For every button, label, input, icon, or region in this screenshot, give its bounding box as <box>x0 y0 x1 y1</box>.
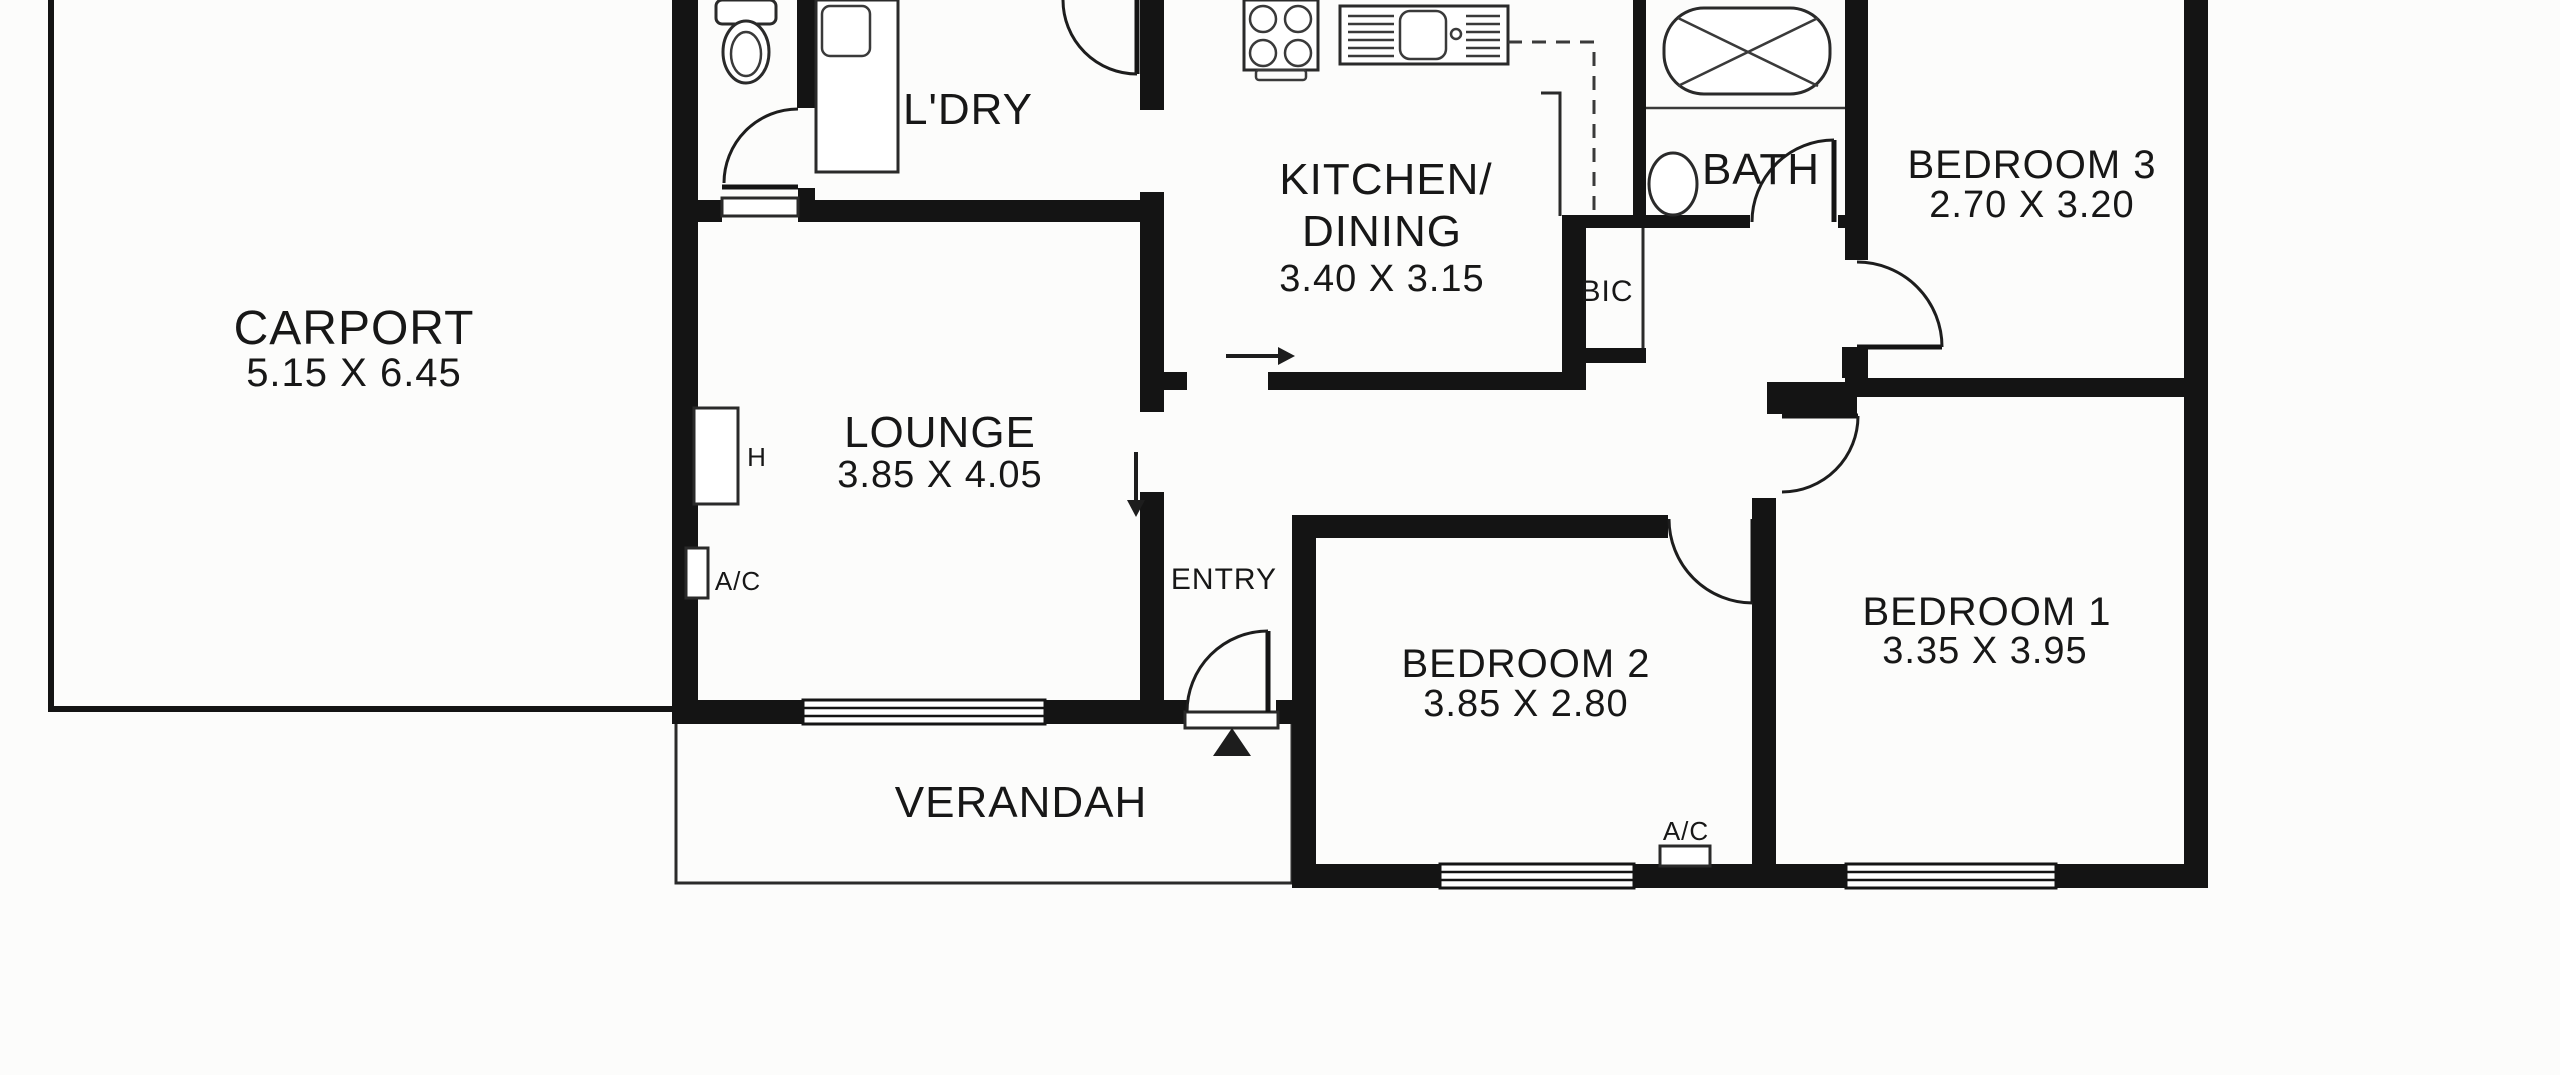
bath-right-wall <box>1845 0 1868 260</box>
lounge-window-icon <box>803 700 1045 724</box>
cooktop-icon <box>1244 0 1318 80</box>
bottom-wall-c <box>2056 864 2208 888</box>
bedroom3-door-stub <box>1842 347 1868 378</box>
lounge-bottom-wall-right <box>1045 700 1188 724</box>
ac-unit-bedroom2-icon <box>1660 846 1710 866</box>
laundry-trough-icon <box>816 0 898 172</box>
lounge-right-wall-upper <box>1140 192 1164 412</box>
bic-label: BIC <box>1580 275 1633 308</box>
lounge-right-wall-lower <box>1140 492 1164 724</box>
laundry-right-wall <box>1140 0 1164 110</box>
entry-wall-stub <box>1164 372 1187 390</box>
bedroom2-dims: 3.85 X 2.80 <box>1423 683 1628 725</box>
floor-plan: CARPORT 5.15 X 6.45 L'DRY KITCHEN/ DININ… <box>0 0 2560 1075</box>
bedroom3-dims: 2.70 X 3.20 <box>1929 184 2134 226</box>
laundry-bottom-wall-right <box>815 200 1164 222</box>
heater-unit-icon <box>694 408 738 504</box>
bedroom2-left-wall <box>1292 515 1316 888</box>
kitchen-label-line2: DINING <box>1302 207 1462 256</box>
kitchen-label-line1: KITCHEN/ <box>1279 155 1492 204</box>
kitchen-sink-icon <box>1340 6 1508 64</box>
bedroom1-window-icon <box>1846 864 2056 888</box>
kitchen-bottom-wall <box>1268 372 1586 390</box>
laundry-bottom-wall-left <box>672 200 722 222</box>
bedroom1-dims: 3.35 X 3.95 <box>1882 630 2087 672</box>
bedroom3-bedroom1-divider <box>1845 378 2184 397</box>
bath-bottom-wall <box>1562 215 1750 228</box>
ac-label-bedroom2: A/C <box>1663 816 1709 846</box>
bedroom1-left-wall <box>1752 498 1776 864</box>
kitchen-dims: 3.40 X 3.15 <box>1279 258 1484 300</box>
house-right-wall <box>2184 0 2208 888</box>
bath-left-wall <box>1633 0 1646 228</box>
bottom-wall-a <box>1292 864 1440 888</box>
lounge-bottom-wall-left <box>672 700 803 724</box>
bedroom2-window-icon <box>1440 864 1634 888</box>
carport-left-wall <box>48 0 54 712</box>
wc-door-jamb <box>798 188 815 222</box>
wash-basin-icon <box>1649 153 1697 215</box>
carport-label: CARPORT <box>234 302 475 355</box>
lounge-label: LOUNGE <box>844 408 1036 457</box>
ac-label-lounge: A/C <box>715 566 761 596</box>
bedroom3-label: BEDROOM 3 <box>1907 143 2156 187</box>
bottom-wall-b <box>1634 864 1846 888</box>
verandah-label: VERANDAH <box>895 778 1148 827</box>
house-left-wall <box>672 0 698 724</box>
heater-label: H <box>747 442 767 472</box>
bedroom2-top-wall <box>1292 515 1668 538</box>
ac-unit-lounge-icon <box>686 548 708 598</box>
bic-bottom-wall <box>1572 348 1646 363</box>
bath-label: BATH <box>1702 145 1820 194</box>
lounge-dims: 3.85 X 4.05 <box>837 454 1042 496</box>
wc-right-wall <box>797 0 815 108</box>
carport-dims: 5.15 X 6.45 <box>246 351 462 395</box>
bedroom1-top-wall-chunk <box>1767 382 1857 414</box>
kitchen-right-lower-wall <box>1562 228 1586 390</box>
carport-bottom-wall <box>48 706 676 712</box>
bedroom2-label: BEDROOM 2 <box>1401 642 1650 686</box>
laundry-label: L'DRY <box>903 85 1033 134</box>
bedroom1-label: BEDROOM 1 <box>1862 590 2111 634</box>
entry-label: ENTRY <box>1171 563 1277 596</box>
